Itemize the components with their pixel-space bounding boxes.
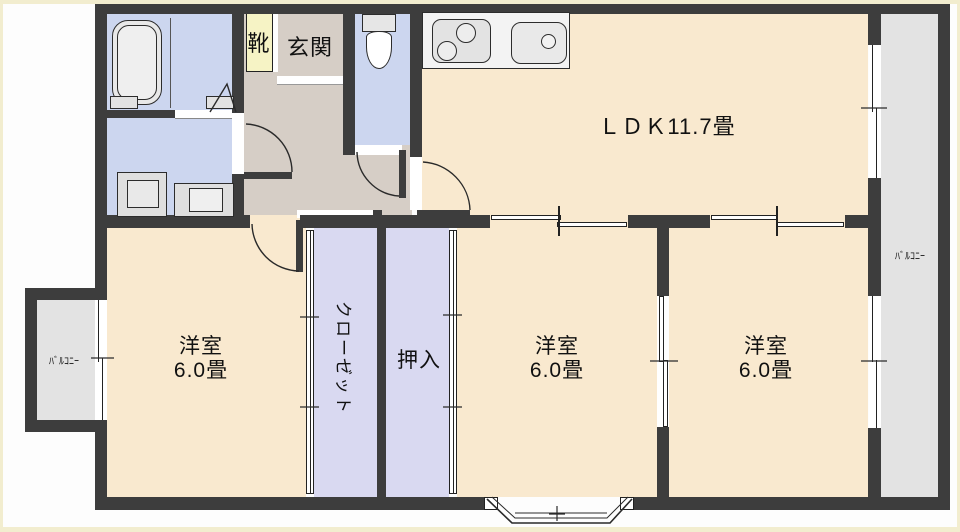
oshiire-door-tick bbox=[443, 315, 462, 407]
label-genkan: 玄関 bbox=[287, 30, 333, 62]
label-oshiire: 押入 bbox=[397, 349, 441, 373]
label-bedroom-left-name: 洋室 bbox=[179, 335, 223, 359]
label-ldk: ＬＤＫ11.7畳 bbox=[598, 109, 735, 141]
label-balcony-left: ﾊﾞﾙｺﾆｰ bbox=[49, 353, 79, 368]
bay-window-outer bbox=[487, 499, 632, 523]
bay-window-tick bbox=[549, 506, 565, 521]
closet-door-tick bbox=[300, 317, 319, 407]
door-arc-bedroom-left bbox=[252, 224, 299, 271]
door-arc-washroom bbox=[246, 124, 292, 172]
label-shoe-cabinet: 靴 bbox=[247, 26, 270, 58]
label-bedroom-right-area: 6.0畳 bbox=[739, 359, 793, 383]
label-bedroom-middle-area: 6.0畳 bbox=[530, 359, 584, 383]
label-bedroom-middle-name: 洋室 bbox=[535, 335, 579, 359]
floor-plan: 靴 玄関 ＬＤＫ11.7畳 洋室 6.0畳 洋室 6.0畳 洋室 6.0畳 クロ… bbox=[0, 0, 960, 532]
label-closet: クローゼット bbox=[333, 301, 358, 415]
door-arc-toilet bbox=[357, 152, 399, 196]
bay-window-inner bbox=[492, 497, 628, 518]
folding-door-bathroom bbox=[210, 84, 236, 112]
label-balcony-right: ﾊﾞﾙｺﾆｰ bbox=[895, 248, 925, 263]
label-bedroom-right-name: 洋室 bbox=[744, 335, 788, 359]
door-arc-layer bbox=[0, 0, 960, 532]
door-arc-ldk bbox=[423, 162, 470, 210]
label-bedroom-left-area: 6.0畳 bbox=[174, 359, 228, 383]
